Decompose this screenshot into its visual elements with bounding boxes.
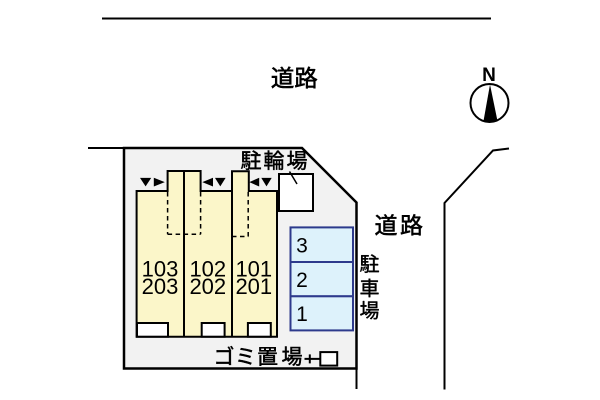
- svg-text:1: 1: [296, 303, 308, 326]
- svg-text:3: 3: [296, 235, 308, 258]
- svg-text:N: N: [482, 65, 496, 86]
- svg-text:201: 201: [235, 274, 272, 299]
- svg-text:202: 202: [189, 274, 226, 299]
- svg-text:2: 2: [296, 269, 308, 292]
- svg-text:203: 203: [142, 274, 179, 299]
